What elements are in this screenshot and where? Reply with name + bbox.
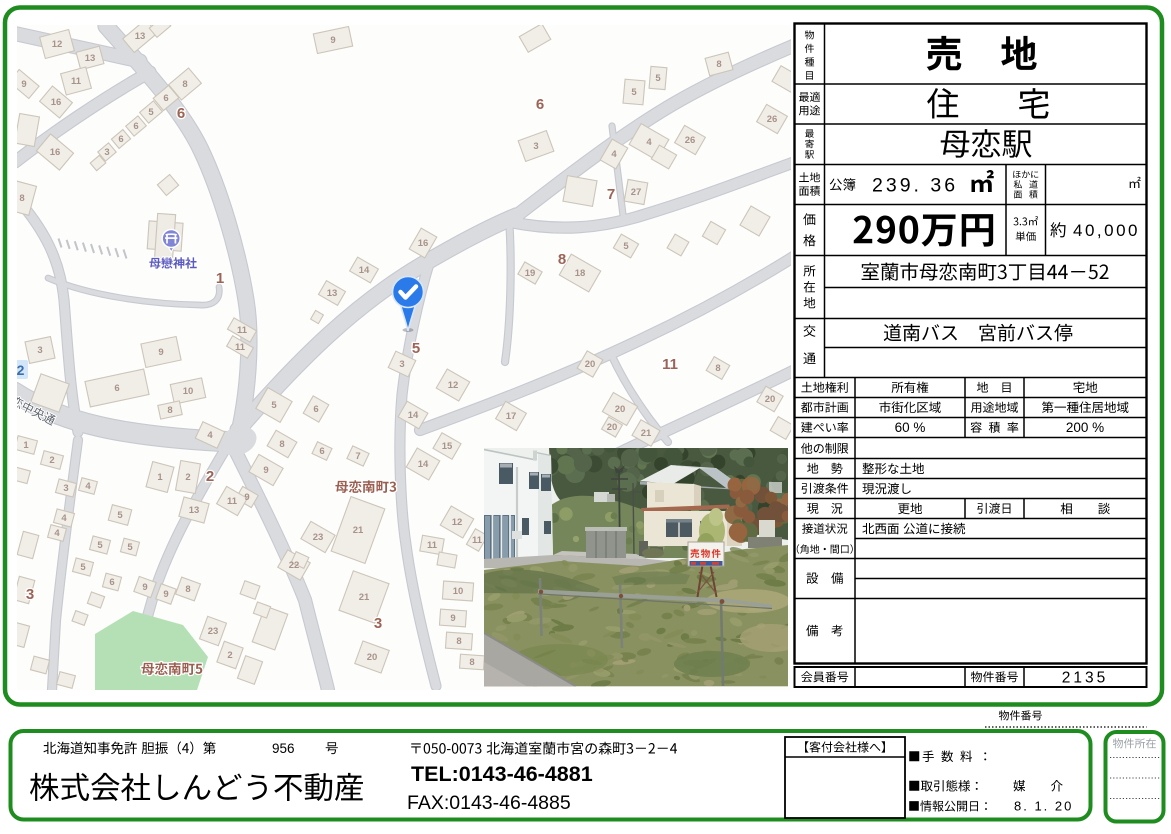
svg-text:5: 5 [412,340,420,357]
svg-text:1: 1 [23,440,29,451]
svg-text:8: 8 [715,363,720,374]
svg-text:18: 18 [575,268,586,279]
svg-text:1: 1 [216,270,224,287]
svg-text:6: 6 [313,404,318,415]
svg-text:2: 2 [227,650,232,661]
svg-text:23: 23 [313,532,324,543]
svg-text:9: 9 [330,35,335,46]
svg-text:15: 15 [442,441,453,452]
svg-text:16: 16 [418,238,429,249]
svg-text:8: 8 [456,636,461,647]
svg-text:6: 6 [109,577,114,588]
svg-text:12: 12 [52,39,63,50]
svg-text:11: 11 [662,356,678,373]
svg-text:21: 21 [359,592,370,603]
svg-text:11: 11 [71,76,82,87]
svg-text:6: 6 [163,93,168,104]
svg-text:5: 5 [655,73,661,84]
svg-text:9: 9 [263,465,268,476]
svg-text:20: 20 [615,404,626,415]
svg-text:5: 5 [117,510,123,521]
svg-text:3: 3 [26,586,34,603]
svg-text:6: 6 [114,383,119,394]
svg-text:5: 5 [127,542,133,553]
svg-text:9: 9 [21,79,26,90]
svg-text:8: 8 [167,405,172,416]
svg-text:4: 4 [85,481,91,492]
svg-text:6: 6 [536,96,544,113]
svg-text:4: 4 [611,149,617,160]
svg-text:8: 8 [469,657,474,668]
svg-text:20: 20 [367,652,378,663]
svg-text:7: 7 [355,451,360,462]
svg-text:14: 14 [418,459,429,470]
svg-text:9: 9 [142,582,147,593]
svg-text:3: 3 [374,615,382,632]
svg-text:8. 1. 20: 8. 1. 20 [1014,799,1073,814]
svg-text:16: 16 [51,97,62,108]
svg-text:60 %: 60 % [895,420,926,435]
svg-text:8: 8 [185,584,190,595]
svg-text:10: 10 [183,386,194,397]
svg-text:2: 2 [185,472,190,483]
svg-text:1: 1 [157,472,163,483]
svg-text:239. 36: 239. 36 [872,175,958,197]
svg-text:14: 14 [408,410,419,421]
svg-text:19: 19 [525,268,536,279]
svg-text:26: 26 [767,114,778,125]
svg-text:200 %: 200 % [1066,420,1104,435]
svg-text:956: 956 [272,741,295,756]
svg-text:6: 6 [177,105,185,122]
svg-text:4: 4 [54,528,60,539]
svg-text:5: 5 [97,540,103,551]
svg-text:8: 8 [279,439,284,450]
svg-text:5: 5 [80,562,86,573]
svg-text:7: 7 [607,186,615,203]
svg-text:4: 4 [61,513,67,524]
svg-text:5: 5 [148,107,154,118]
svg-text:20: 20 [607,422,618,433]
svg-text:40,000: 40,000 [1073,221,1140,240]
svg-text:11: 11 [472,535,483,546]
svg-text:21: 21 [353,525,364,536]
svg-text:17: 17 [506,411,517,422]
svg-text:3: 3 [104,147,109,158]
svg-text:9: 9 [163,589,168,600]
svg-text:2: 2 [17,362,25,378]
svg-text:11: 11 [237,325,248,336]
svg-text:9: 9 [244,492,249,503]
svg-text:13: 13 [189,505,200,516]
svg-text:8: 8 [182,79,187,90]
svg-text:4: 4 [207,430,213,441]
svg-text:11: 11 [235,342,246,353]
svg-text:14: 14 [359,265,370,276]
svg-text:11: 11 [227,496,238,507]
svg-text:3: 3 [533,141,538,152]
svg-text:20: 20 [765,394,776,405]
svg-text:6: 6 [319,446,324,457]
svg-text:13: 13 [85,53,96,64]
svg-text:FAX:0143-46-4885: FAX:0143-46-4885 [407,792,571,814]
svg-text:12: 12 [452,517,463,528]
svg-text:8: 8 [558,251,566,268]
svg-text:8: 8 [716,59,721,70]
svg-text:5: 5 [623,241,629,252]
svg-text:4: 4 [646,137,652,148]
svg-text:5: 5 [271,400,277,411]
svg-text:13: 13 [327,288,338,299]
svg-text:3: 3 [37,345,42,356]
svg-text:22: 22 [289,560,300,571]
svg-text:27: 27 [631,187,642,198]
svg-text:11: 11 [427,540,438,551]
svg-text:23: 23 [208,626,219,637]
svg-text:9: 9 [158,347,163,358]
svg-text:6: 6 [118,134,123,145]
svg-text:16: 16 [50,147,61,158]
svg-text:TEL:0143-46-4881: TEL:0143-46-4881 [411,762,593,786]
svg-text:12: 12 [448,380,459,391]
svg-text:3: 3 [399,359,404,370]
svg-text:2135: 2135 [1062,670,1108,687]
svg-text:9: 9 [450,613,455,624]
svg-text:2: 2 [49,455,54,466]
svg-text:26: 26 [685,135,696,146]
svg-text:3: 3 [63,483,68,494]
svg-text:2: 2 [206,468,214,485]
svg-text:20: 20 [585,359,596,370]
svg-text:13: 13 [135,31,146,42]
svg-text:8: 8 [19,193,24,204]
svg-text:5: 5 [631,87,637,98]
svg-text:10: 10 [453,586,464,597]
svg-text:21: 21 [641,428,652,439]
svg-text:6: 6 [133,121,138,132]
